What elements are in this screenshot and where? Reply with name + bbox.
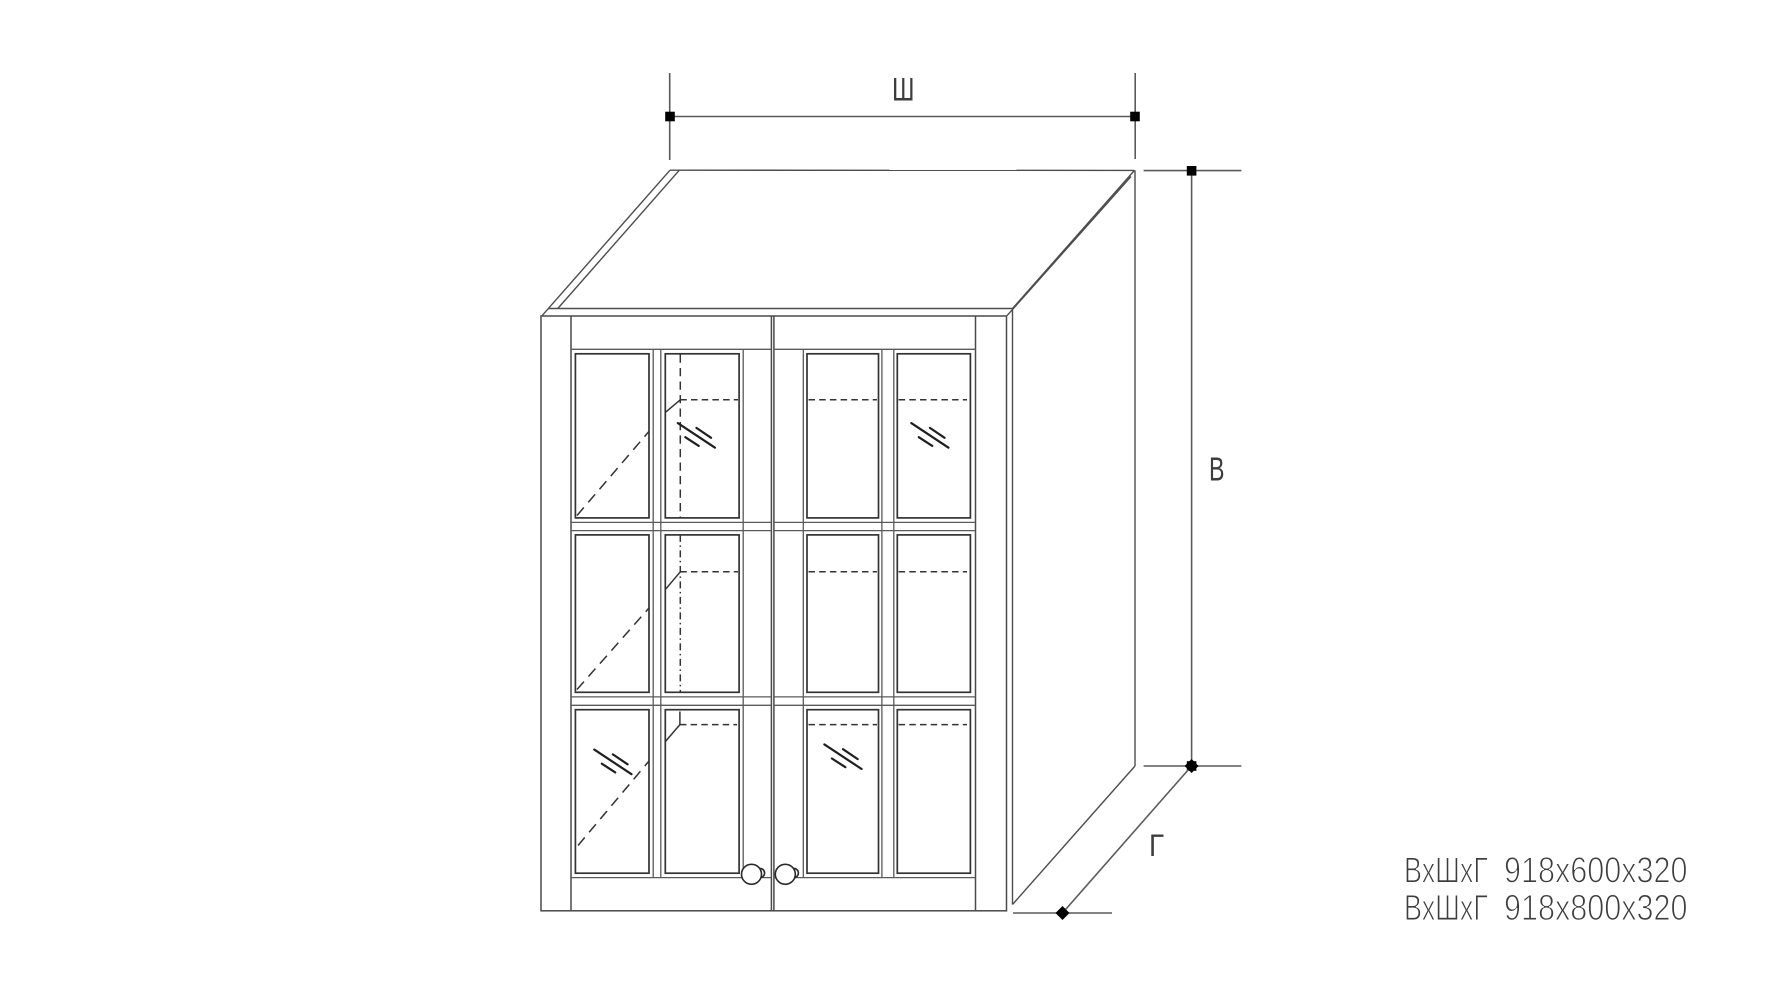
- svg-text:Г: Г: [1149, 827, 1164, 863]
- svg-text:ВхШхГ: ВхШхГ: [1404, 849, 1488, 890]
- svg-text:Ш: Ш: [892, 71, 915, 107]
- svg-text:В: В: [1209, 452, 1225, 489]
- svg-text:918х600х320: 918х600х320: [1504, 849, 1688, 890]
- svg-text:ВхШхГ: ВхШхГ: [1404, 887, 1488, 928]
- svg-text:918х800х320: 918х800х320: [1504, 887, 1688, 928]
